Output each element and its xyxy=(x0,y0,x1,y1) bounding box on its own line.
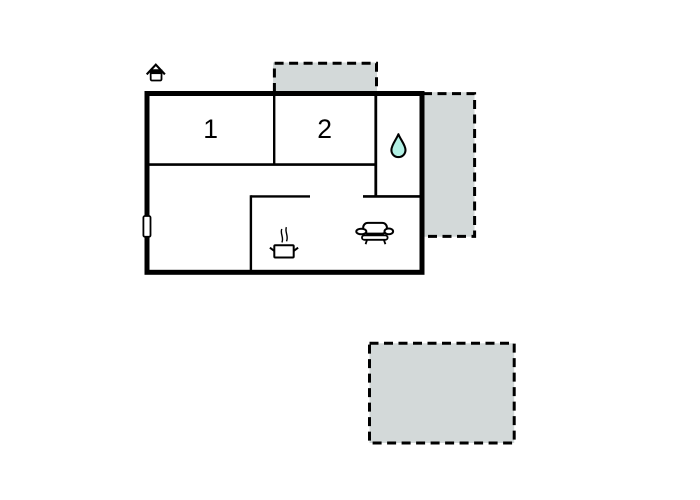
svg-text:1: 1 xyxy=(203,114,218,144)
svg-text:2: 2 xyxy=(317,114,332,144)
